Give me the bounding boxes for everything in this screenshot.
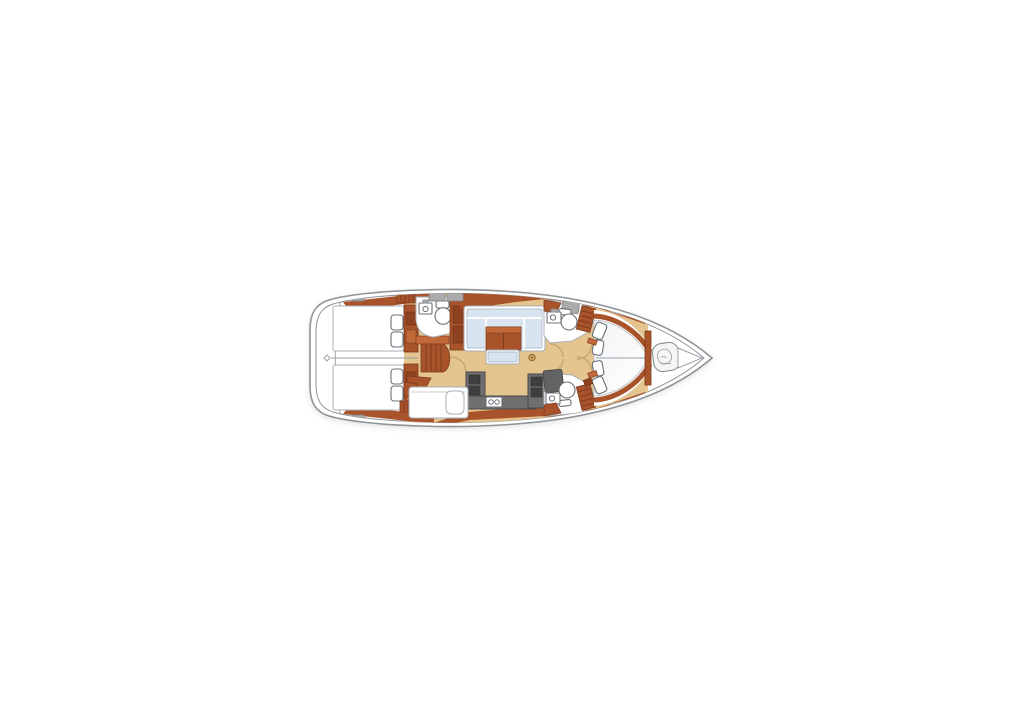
pillow — [391, 386, 403, 401]
stove-burner — [531, 377, 542, 386]
appliance — [469, 386, 480, 395]
appliance — [469, 375, 480, 384]
yacht-floor-plan — [0, 0, 1024, 724]
deck-hatch — [447, 293, 463, 301]
saloon-bench — [486, 350, 519, 364]
companionway-steps — [421, 344, 450, 372]
side-berth — [404, 382, 468, 418]
pillow — [391, 369, 403, 384]
mast-post — [529, 354, 535, 360]
page — [0, 0, 1024, 724]
saloon-table — [486, 327, 521, 350]
twin-sink — [486, 397, 502, 407]
deck-hatch — [429, 293, 445, 301]
pillow — [391, 332, 403, 347]
windlass-sailbag — [651, 341, 681, 372]
forward-bulkhead — [645, 331, 651, 385]
pillow — [391, 315, 403, 330]
toilet — [435, 301, 451, 324]
stove-burner — [531, 388, 542, 397]
lift-lid — [446, 391, 464, 414]
